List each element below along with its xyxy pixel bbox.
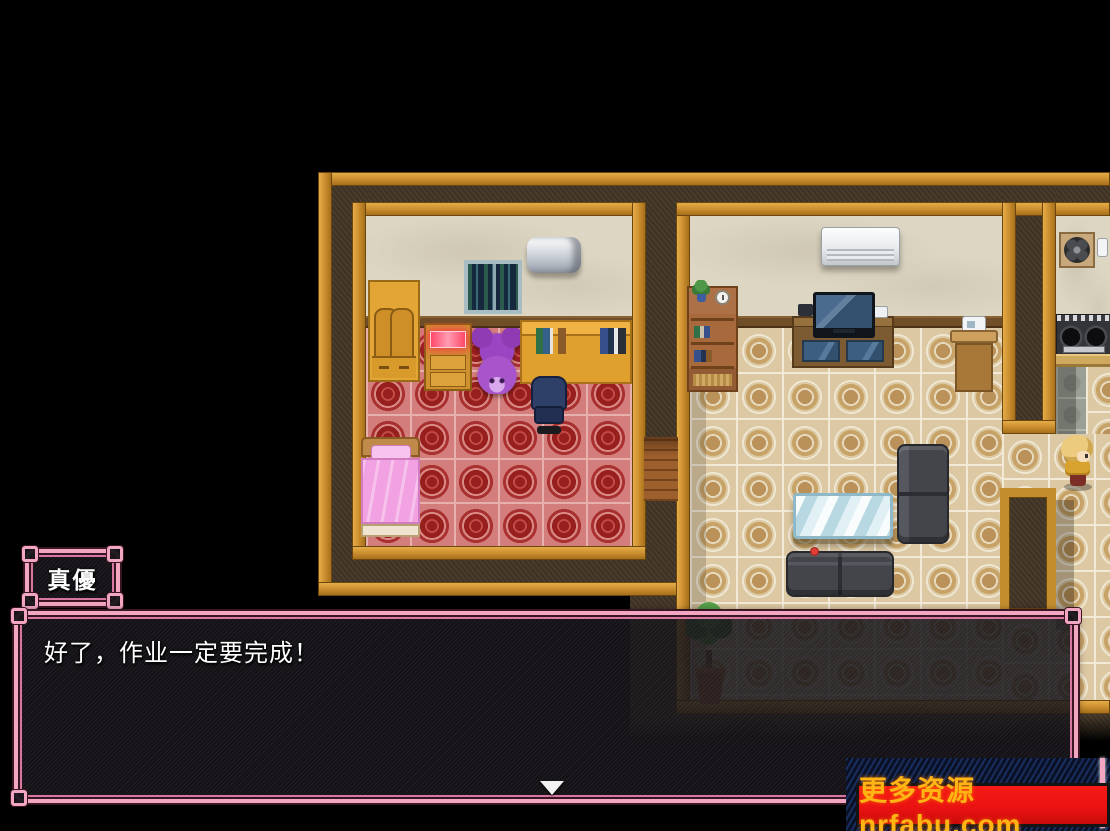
phone-table-body (955, 343, 993, 392)
shelf-books-1 (694, 326, 714, 338)
trim-kitchen-divider-right (1042, 202, 1056, 434)
wardrobe-door-right (390, 308, 414, 362)
trim-outer-top (318, 172, 1110, 186)
study-desk (520, 320, 632, 384)
trim-bedroom-outer-bottom (318, 582, 678, 596)
trim-divider-bottom-cap (1002, 420, 1056, 434)
glass-coffee-table (793, 493, 893, 539)
trim-bedroom-floor-bottom (352, 546, 646, 560)
desk-books-right (600, 328, 626, 354)
tv-cabinet-glass-left (802, 340, 840, 362)
wardrobe-drawers (372, 356, 416, 378)
phone-table (950, 330, 998, 392)
display-shelf (687, 286, 738, 392)
fan-blades (1064, 237, 1090, 263)
chair-base (537, 426, 561, 434)
chair-seat (534, 406, 564, 424)
vanity-dresser (424, 323, 472, 391)
game-screen[interactable]: 真優 好了，作业一定要完成！ 更多资源nrfabu.com (0, 0, 1110, 831)
tv-cabinet-glass-right (846, 340, 884, 362)
kitchen-counter (1056, 354, 1110, 367)
window-corner-decoration (11, 608, 27, 624)
trim-bedroom-top (352, 202, 646, 216)
bed (361, 437, 420, 537)
tv-stand (833, 329, 855, 333)
character-eye (1085, 454, 1088, 458)
desk-books-left (536, 328, 566, 354)
speaker-name: 真優 (29, 561, 116, 595)
bed-blanket (361, 458, 420, 524)
shelf-books-2 (694, 350, 718, 362)
dresser-drawer-1 (430, 355, 466, 370)
trim-kitchen-divider-left (1002, 202, 1016, 434)
tv (813, 292, 875, 338)
vanity-glow-light (430, 331, 466, 348)
window-corner-decoration (11, 790, 27, 806)
air-conditioner (821, 227, 900, 266)
window-corner-decoration (1065, 608, 1081, 624)
bedroom-window (464, 260, 522, 314)
sofa-horizontal (786, 551, 894, 597)
tv-screen (816, 295, 872, 328)
dialogue-name-box: 真優 (25, 549, 120, 606)
red-flower-item (810, 547, 819, 556)
watermark-text: 更多资源nrfabu.com (859, 769, 1107, 831)
character-face (1077, 451, 1090, 462)
watermark-banner: 更多资源nrfabu.com (856, 783, 1110, 827)
window-corner-decoration (107, 593, 123, 609)
trim-bedroom-right (632, 202, 646, 560)
window-corner-decoration (22, 593, 38, 609)
bed-footboard (361, 524, 420, 537)
shelf-line-2 (691, 342, 734, 345)
shelf-baskets (693, 374, 732, 386)
wall-lamp (527, 237, 581, 273)
character-legs (1070, 475, 1086, 486)
fan-switch (1097, 238, 1108, 257)
phone-table-top (950, 330, 998, 343)
shelf-line-3 (691, 366, 734, 369)
wardrobe (368, 280, 420, 382)
media-player (798, 304, 813, 316)
sofa-vertical (897, 444, 949, 544)
wall-shadow-kitchen (1056, 367, 1076, 434)
office-chair (527, 376, 573, 442)
shelf-plant-pot (697, 294, 706, 302)
shelf-line-1 (691, 318, 734, 321)
shelf-clock (715, 290, 730, 305)
wall-pillar (1000, 488, 1056, 618)
dresser-drawer-2 (430, 372, 466, 387)
player-character (1061, 435, 1097, 493)
kitchen-stove (1056, 314, 1110, 356)
continue-arrow-icon[interactable] (540, 781, 564, 795)
dialogue-text: 好了，作业一定要完成！ (44, 633, 319, 668)
trim-outer-left (318, 172, 332, 596)
character-body (1065, 460, 1090, 476)
kitchen-floor-tan (1086, 367, 1110, 434)
doorway-wood-floor (644, 437, 678, 501)
teddy-bear (472, 328, 522, 394)
kitchen-exhaust-fan (1059, 232, 1095, 268)
chair-backrest (531, 376, 567, 410)
